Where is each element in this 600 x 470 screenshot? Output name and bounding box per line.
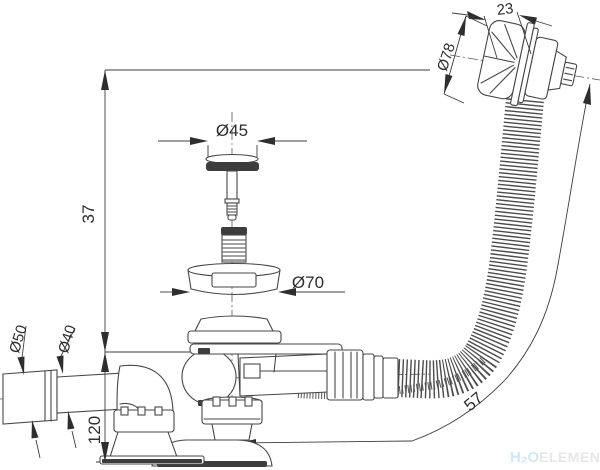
drain-kit-drawing: 57 23 Ø78 [0, 0, 600, 470]
dim-label-78: Ø78 [434, 41, 459, 73]
rubber-gasket [188, 316, 281, 343]
watermark: H₂O ELEMENT [510, 449, 600, 466]
dim-label-120: 120 [85, 416, 104, 444]
dim-label-45: Ø45 [216, 121, 248, 140]
dim-label-70: Ø70 [292, 273, 324, 292]
dim-label-57: 57 [460, 388, 487, 415]
dim-height-overflow: 37 [79, 70, 109, 352]
dim-label-40: Ø40 [55, 323, 80, 355]
screw-stud [221, 227, 247, 262]
drain-flange [188, 264, 280, 295]
drain-stopper [206, 155, 259, 221]
dim-stopper-diameter: Ø45 [158, 121, 307, 157]
technical-drawing-canvas: 57 23 Ø78 [0, 0, 600, 470]
dim-label-37: 37 [79, 205, 98, 224]
watermark-element: ELEMENT [539, 449, 600, 465]
dim-label-50: Ø50 [6, 323, 31, 355]
dim-label-23: 23 [496, 0, 515, 19]
watermark-h2o: H₂O [510, 449, 539, 466]
